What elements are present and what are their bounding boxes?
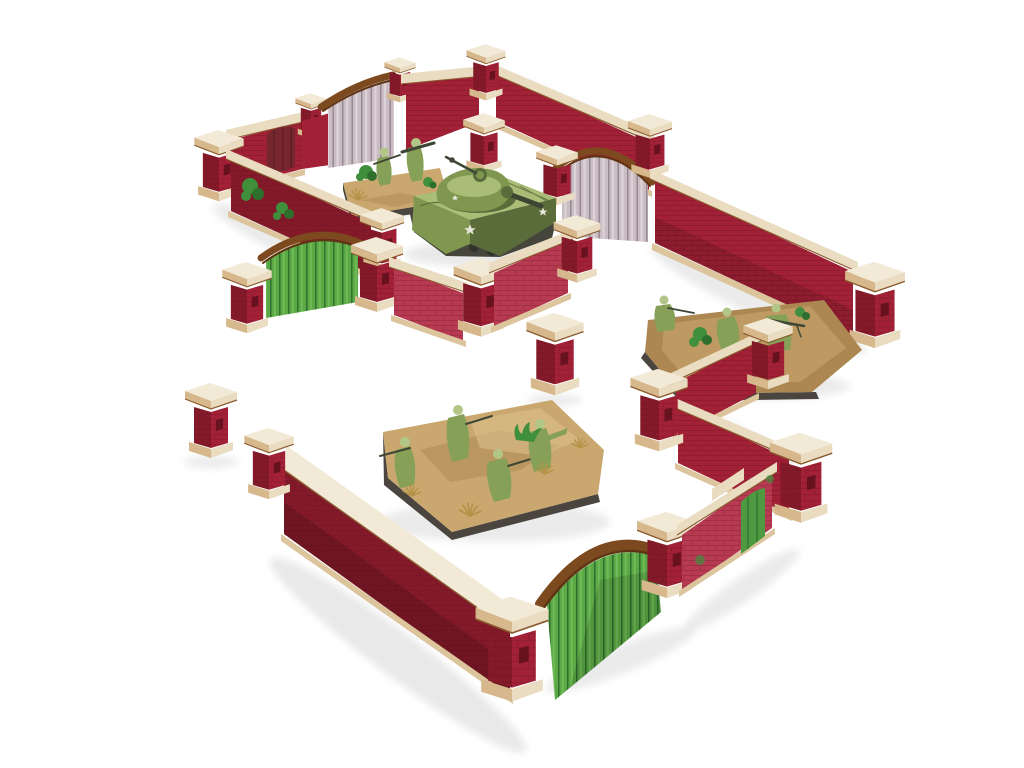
freestanding-pillar-1 [463, 113, 505, 173]
gate-pillar [222, 262, 271, 333]
product-photo [0, 0, 1024, 768]
terrain-scene [0, 0, 1024, 768]
freestanding-pillar-3 [185, 383, 237, 458]
green-gate-small [261, 235, 362, 318]
pillar-right-end [845, 262, 905, 348]
freestanding-pillar-2 [526, 313, 583, 396]
grey-gate-northwest [302, 75, 394, 169]
